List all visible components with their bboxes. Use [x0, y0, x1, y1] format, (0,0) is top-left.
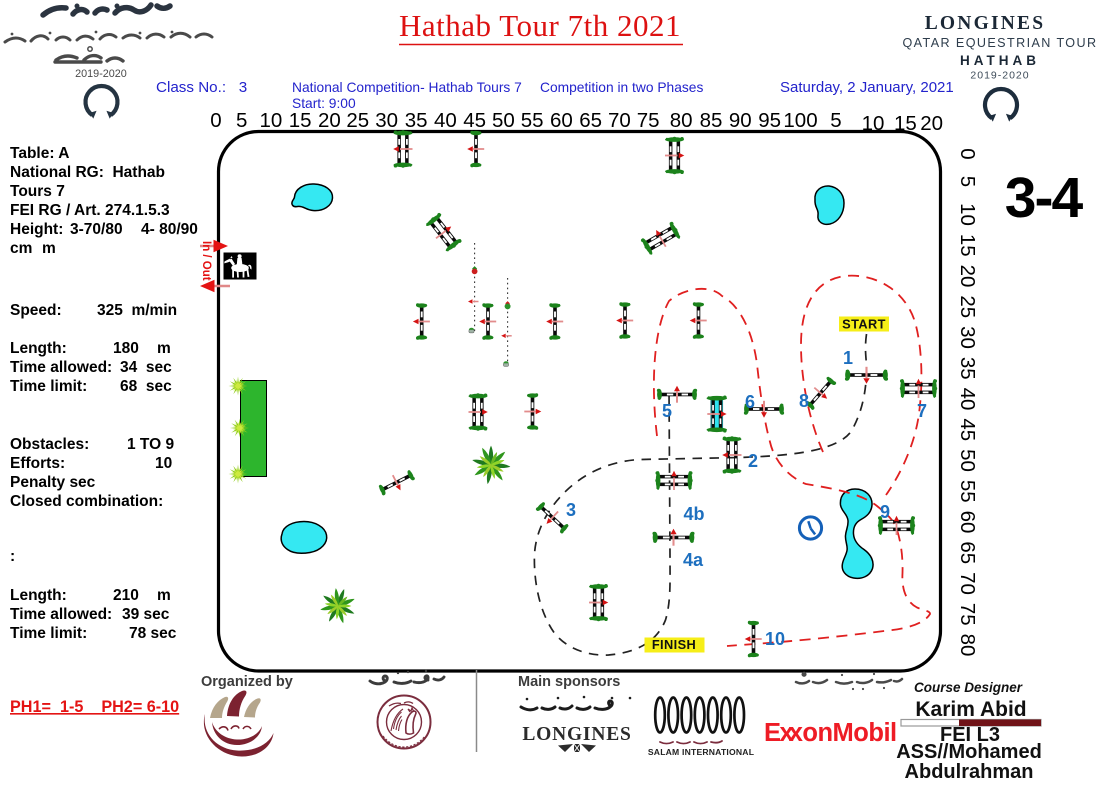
svg-text:PH1= 1-5 PH2= 6-10: PH1= 1-5 PH2= 6-10 [10, 698, 179, 716]
svg-text:Organized by: Organized by [201, 674, 293, 690]
svg-text:70: 70 [956, 572, 979, 595]
svg-text:95: 95 [758, 109, 781, 132]
svg-text:LONGINES: LONGINES [925, 13, 1046, 34]
svg-text:5: 5 [662, 401, 672, 421]
svg-text:4- 80/90: 4- 80/90 [141, 221, 198, 238]
svg-text:Competition in two Phases: Competition in two Phases [540, 80, 703, 95]
svg-text:10: 10 [956, 203, 979, 226]
svg-text:30: 30 [956, 326, 979, 349]
svg-text:10: 10 [862, 112, 885, 135]
svg-text:325 m/min: 325 m/min [97, 302, 177, 319]
svg-text:45: 45 [956, 418, 979, 441]
svg-text:4a: 4a [683, 550, 704, 570]
svg-text:Obstacles:: Obstacles: [10, 436, 89, 453]
svg-text:m: m [42, 240, 56, 257]
svg-text:15: 15 [289, 109, 312, 132]
svg-text:2019-2020: 2019-2020 [970, 70, 1029, 82]
svg-text:Main sponsors: Main sponsors [518, 674, 620, 690]
svg-text:78 sec: 78 sec [129, 625, 177, 642]
svg-text:75: 75 [637, 109, 660, 132]
svg-text:180: 180 [113, 340, 139, 357]
svg-text:m: m [157, 587, 171, 604]
svg-text:25: 25 [956, 295, 979, 318]
svg-text:National Competition- Hathab T: National Competition- Hathab Tours 7 [292, 80, 522, 95]
svg-text:Time limit:: Time limit: [10, 378, 87, 395]
svg-text:50: 50 [956, 449, 979, 472]
svg-text:5: 5 [956, 176, 979, 187]
svg-text:Table: A: Table: A [10, 145, 69, 162]
svg-text:Time allowed:: Time allowed: [10, 359, 112, 376]
svg-text:0: 0 [956, 148, 979, 159]
svg-text:Length:: Length: [10, 340, 67, 357]
svg-text:35: 35 [956, 357, 979, 380]
svg-text:Penalty sec: Penalty sec [10, 474, 96, 491]
svg-text:Efforts:: Efforts: [10, 455, 65, 472]
svg-text:55: 55 [521, 109, 544, 132]
svg-text:Speed:: Speed: [10, 302, 62, 319]
svg-text:3-4: 3-4 [1005, 166, 1084, 230]
svg-text:FEI RG / Art. 274.1.5.3: FEI RG / Art. 274.1.5.3 [10, 202, 170, 219]
svg-text:20: 20 [318, 109, 341, 132]
svg-text:80: 80 [670, 109, 693, 132]
svg-text:ASS//Mohamed: ASS//Mohamed [896, 741, 1042, 763]
svg-text:START: START [842, 317, 886, 332]
svg-text:30: 30 [375, 109, 398, 132]
svg-text:85: 85 [700, 109, 723, 132]
svg-text:0: 0 [210, 109, 221, 132]
svg-text:20: 20 [920, 112, 943, 135]
svg-text:1: 1 [843, 348, 853, 368]
svg-text:Length:: Length: [10, 587, 67, 604]
svg-text:39 sec: 39 sec [122, 606, 170, 623]
svg-text:68 sec: 68 sec [120, 378, 172, 395]
svg-text:100: 100 [783, 109, 817, 132]
svg-text:Time allowed:: Time allowed: [10, 606, 112, 623]
svg-text:90: 90 [729, 109, 752, 132]
svg-text::: : [10, 548, 15, 565]
svg-text:60: 60 [956, 511, 979, 534]
svg-text:2019-2020: 2019-2020 [75, 68, 127, 80]
svg-text:60: 60 [550, 109, 573, 132]
svg-text:25: 25 [346, 109, 369, 132]
svg-text:9: 9 [880, 502, 890, 522]
svg-text:National RG: Hathab: National RG: Hathab [10, 164, 165, 181]
svg-text:In / Out: In / Out [200, 241, 212, 281]
svg-text:15: 15 [894, 112, 917, 135]
svg-text:10: 10 [155, 455, 172, 472]
svg-text:45: 45 [463, 109, 486, 132]
svg-text:80: 80 [956, 634, 979, 657]
svg-text:65: 65 [956, 541, 979, 564]
svg-text:Saturday, 2 January, 2021: Saturday, 2 January, 2021 [780, 79, 954, 96]
svg-text:3-70/80: 3-70/80 [70, 221, 123, 238]
svg-text:cm: cm [10, 240, 32, 257]
svg-text:40: 40 [434, 109, 457, 132]
svg-text:Time limit:: Time limit: [10, 625, 87, 642]
svg-text:Abdulrahman: Abdulrahman [905, 761, 1034, 783]
svg-text:QATAR EQUESTRIAN TOUR: QATAR EQUESTRIAN TOUR [902, 36, 1097, 50]
svg-text:2: 2 [748, 451, 758, 471]
svg-text:Course Designer: Course Designer [914, 680, 1023, 695]
svg-text:210: 210 [113, 587, 139, 604]
svg-text:SALAM INTERNATIONAL: SALAM INTERNATIONAL [648, 747, 754, 757]
svg-text:Height:: Height: [10, 221, 63, 238]
svg-text:50: 50 [492, 109, 515, 132]
svg-text:Class No.: 3: Class No.: 3 [156, 79, 247, 96]
svg-text:Hathab Tour 7th 2021: Hathab Tour 7th 2021 [399, 8, 681, 43]
svg-text:6: 6 [745, 392, 755, 412]
svg-text:15: 15 [956, 234, 979, 257]
svg-text:40: 40 [956, 388, 979, 411]
svg-text:Tours 7: Tours 7 [10, 183, 65, 200]
svg-text:10: 10 [765, 629, 785, 649]
svg-text:70: 70 [608, 109, 631, 132]
svg-text:8: 8 [799, 391, 809, 411]
svg-text:m: m [157, 340, 171, 357]
svg-text:Closed combination:: Closed combination: [10, 493, 163, 510]
svg-text:1 TO 9: 1 TO 9 [127, 436, 174, 453]
svg-text:75: 75 [956, 603, 979, 626]
svg-text:34 sec: 34 sec [120, 359, 172, 376]
svg-text:65: 65 [579, 109, 602, 132]
svg-text:5: 5 [830, 109, 841, 132]
svg-text:FINISH: FINISH [652, 637, 696, 652]
svg-text:HATHAB: HATHAB [960, 53, 1040, 68]
svg-text:LONGINES: LONGINES [522, 724, 631, 745]
svg-text:Karim Abid: Karim Abid [915, 698, 1026, 721]
svg-text:55: 55 [956, 480, 979, 503]
svg-text:35: 35 [405, 109, 428, 132]
svg-text:10: 10 [259, 109, 282, 132]
svg-text:7: 7 [917, 401, 927, 421]
svg-text:ExxonMobil: ExxonMobil [764, 719, 897, 747]
svg-text:3: 3 [566, 500, 576, 520]
svg-text:20: 20 [956, 265, 979, 288]
svg-text:4b: 4b [683, 504, 704, 524]
svg-text:5: 5 [236, 109, 247, 132]
